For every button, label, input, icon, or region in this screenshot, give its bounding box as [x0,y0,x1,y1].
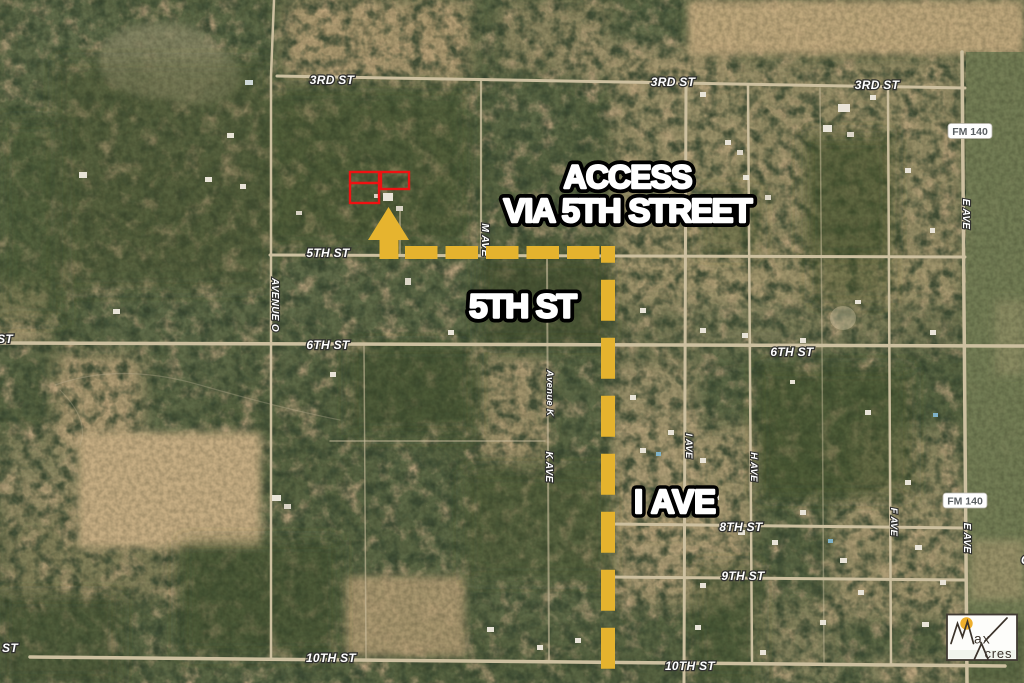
svg-text:I AVE: I AVE [634,483,716,520]
svg-text:5TH ST: 5TH ST [469,289,578,326]
svg-text:AVENUE O: AVENUE O [269,277,280,332]
svg-text:FM 140: FM 140 [952,126,988,138]
svg-text:3RD ST: 3RD ST [855,78,901,92]
svg-text:8TH ST: 8TH ST [719,520,764,534]
svg-text:E AVE: E AVE [960,199,971,229]
svg-text:FM 140: FM 140 [947,496,983,508]
svg-text:3RD ST: 3RD ST [310,73,356,87]
svg-text:5TH ST: 5TH ST [306,246,351,260]
svg-text:H AVE: H AVE [748,452,759,482]
svg-text:cres: cres [985,646,1013,661]
svg-text:K AVE: K AVE [543,452,554,483]
svg-text:Avenue K: Avenue K [544,369,555,417]
svg-text:6TH ST: 6TH ST [770,345,815,359]
svg-text:VIA 5TH STREET: VIA 5TH STREET [504,192,753,229]
svg-text:10TH ST: 10TH ST [306,651,357,665]
svg-text:9TH ST: 9TH ST [721,569,766,583]
svg-text:ax: ax [974,631,991,647]
svg-text:10TH ST: 10TH ST [0,641,19,655]
svg-text:F AVE: F AVE [888,508,899,537]
svg-text:10TH ST: 10TH ST [665,659,716,673]
svg-text:ACCESS: ACCESS [564,159,693,195]
svg-text:3RD ST: 3RD ST [651,75,697,89]
svg-text:6TH ST: 6TH ST [0,332,14,346]
svg-text:E AVE: E AVE [961,523,972,553]
svg-text:I AVE: I AVE [683,433,694,459]
svg-text:6TH ST: 6TH ST [306,338,351,352]
